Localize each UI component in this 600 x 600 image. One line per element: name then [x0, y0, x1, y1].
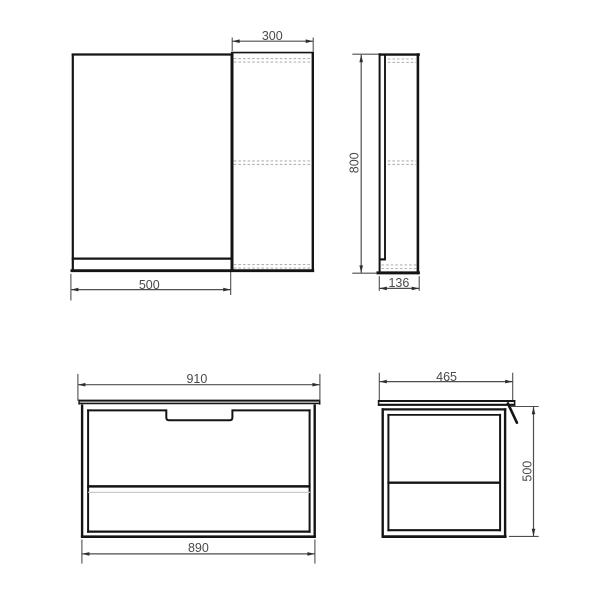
svg-text:500: 500: [139, 278, 160, 292]
svg-text:500: 500: [520, 461, 534, 482]
svg-text:890: 890: [188, 541, 209, 555]
svg-text:910: 910: [186, 372, 207, 386]
svg-text:300: 300: [262, 29, 283, 43]
svg-text:136: 136: [388, 276, 409, 290]
svg-text:800: 800: [347, 152, 361, 173]
svg-text:465: 465: [436, 370, 457, 384]
